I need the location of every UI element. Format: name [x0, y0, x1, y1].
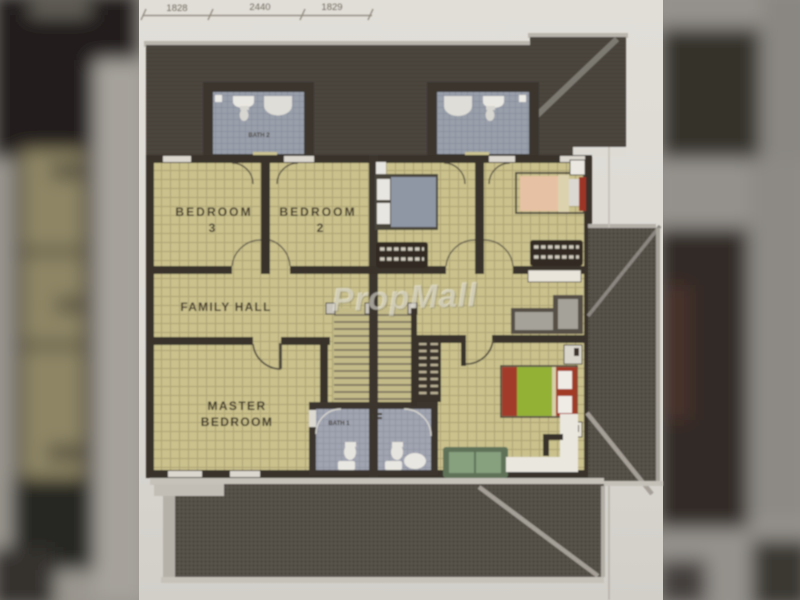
svg-text:BEDROOM: BEDROOM	[279, 205, 356, 219]
svg-text:MASTER: MASTER	[207, 399, 266, 413]
svg-text:2440: 2440	[249, 2, 270, 13]
svg-text:BATH 2: BATH 2	[248, 133, 270, 139]
svg-text:FAMILY HALL: FAMILY HALL	[180, 300, 271, 314]
svg-text:BEDROOM: BEDROOM	[175, 205, 252, 219]
svg-text:BATH 1: BATH 1	[328, 421, 350, 427]
svg-text:3: 3	[209, 221, 218, 235]
svg-text:2: 2	[317, 221, 326, 235]
svg-text:BEDROOM: BEDROOM	[201, 415, 273, 429]
svg-text:PropMall: PropMall	[331, 276, 478, 318]
svg-text:1828: 1828	[166, 3, 187, 14]
svg-text:1829: 1829	[321, 2, 342, 13]
